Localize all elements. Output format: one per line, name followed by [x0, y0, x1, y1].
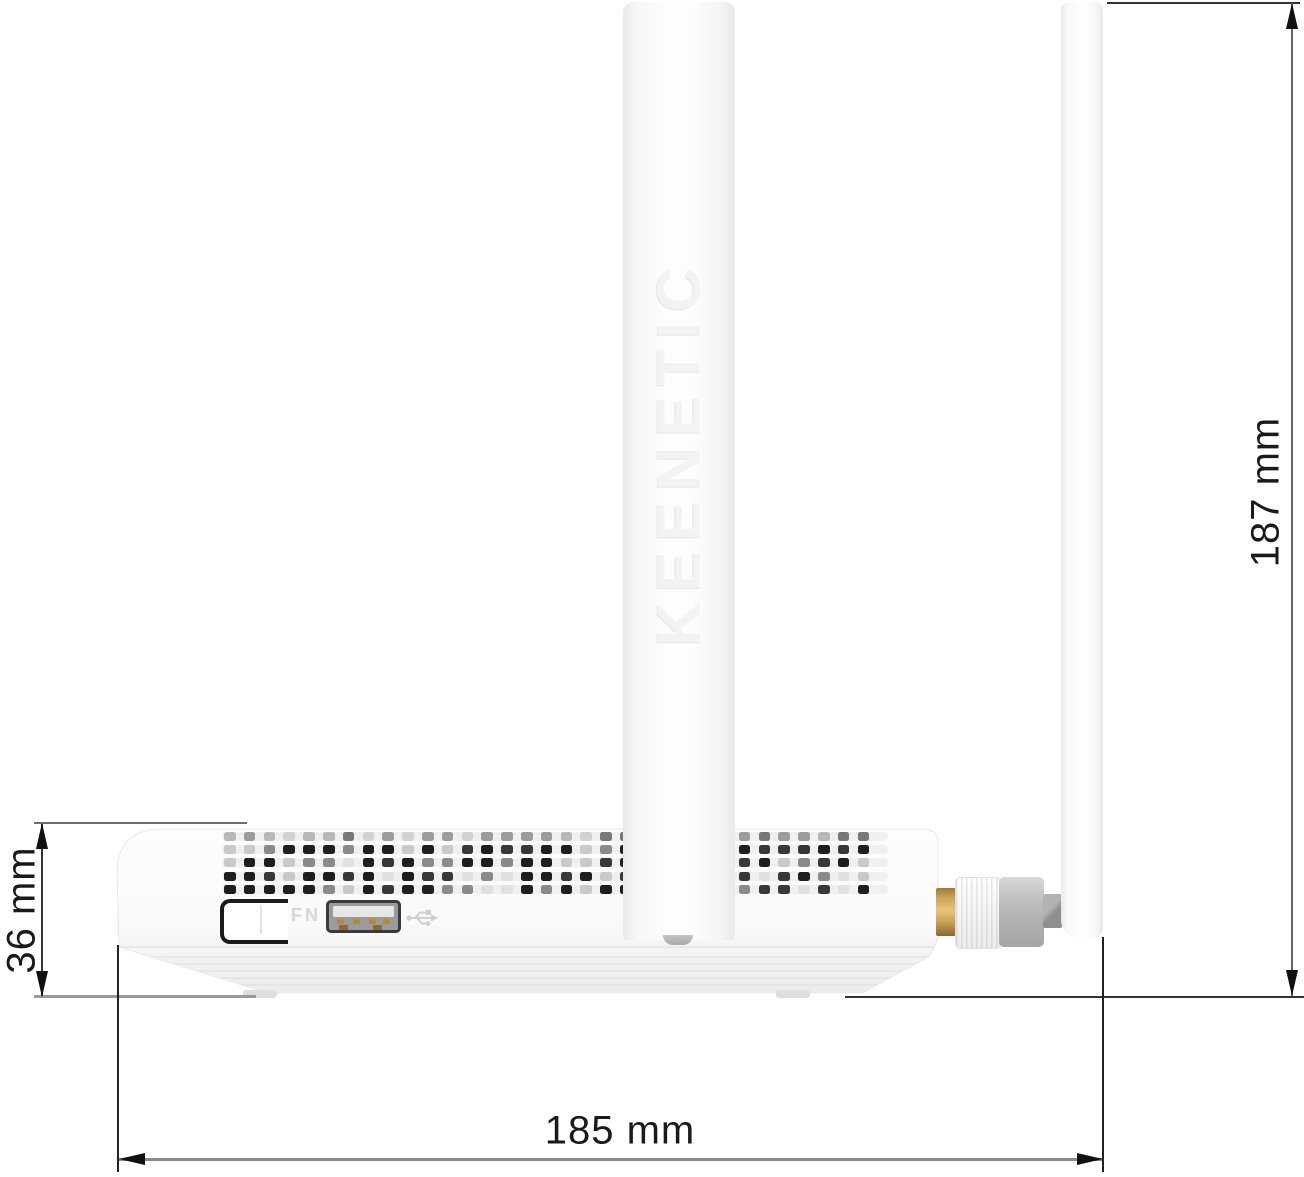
vent-hole [303, 872, 315, 881]
vent-hole [521, 845, 533, 854]
brand-embossed-text: KEENETIC [644, 258, 714, 646]
vent-hole [224, 845, 236, 854]
vent-hole [224, 858, 236, 867]
usb-port [326, 900, 401, 933]
vent-hole [402, 832, 414, 841]
antenna-joint-cylinder [999, 877, 1044, 947]
vent-hole [422, 832, 434, 841]
dimensional-drawing: FN KEENETIC 36 mm [0, 0, 1304, 1177]
usb-anchor-hole [339, 925, 348, 930]
vent-hole [600, 872, 612, 881]
vent-hole [481, 845, 493, 854]
vent-hole [402, 858, 414, 867]
vent-hole [264, 832, 276, 841]
usb-tongue [333, 906, 394, 917]
vent-hole [778, 858, 790, 867]
vent-hole [283, 832, 295, 841]
vent-hole [818, 832, 830, 841]
vent-hole [501, 845, 513, 854]
vent-hole [303, 885, 315, 894]
vent-hole [858, 858, 870, 867]
vent-hole [600, 832, 612, 841]
vent-hole [442, 858, 454, 867]
usb-anchor-hole [373, 925, 382, 930]
arrowhead-up-187mm [1286, 3, 1298, 29]
vent-hole [521, 872, 533, 881]
baseline-right [845, 996, 1304, 998]
vent-hole [580, 872, 592, 881]
vent-hole [343, 832, 355, 841]
vent-hole [580, 885, 592, 894]
vent-hole [244, 858, 256, 867]
usb-contact [383, 919, 390, 924]
vent-hole [580, 845, 592, 854]
vent-hole [422, 872, 434, 881]
vent-hole [422, 858, 434, 867]
vent-hole [580, 832, 592, 841]
vent-hole [561, 845, 573, 854]
vent-hole [363, 872, 375, 881]
vent-hole [818, 845, 830, 854]
vent-hole [442, 832, 454, 841]
vent-hole [283, 845, 295, 854]
vent-hole [778, 885, 790, 894]
extension-line-top-left [34, 822, 247, 824]
dimension-line-185mm [119, 1158, 1102, 1161]
vent-hole [739, 858, 751, 867]
vent-hole [323, 885, 335, 894]
right-antenna [1061, 2, 1103, 938]
vent-hole [481, 858, 493, 867]
fn-button [220, 899, 288, 944]
vent-hole [442, 845, 454, 854]
vent-hole [303, 845, 315, 854]
arrowhead-right-185mm [1077, 1153, 1103, 1165]
vent-hole [838, 858, 850, 867]
vent-hole [541, 885, 553, 894]
vent-hole [283, 858, 295, 867]
arrowhead-up-36mm [36, 823, 48, 849]
vent-hole [264, 845, 276, 854]
vent-hole [541, 845, 553, 854]
vent-hole [561, 858, 573, 867]
vent-hole [600, 885, 612, 894]
vent-hole [798, 845, 810, 854]
vent-hole [343, 885, 355, 894]
vent-hole [323, 872, 335, 881]
extension-line-bottom-left [117, 945, 119, 1172]
vent-hole [244, 832, 256, 841]
vent-hole [323, 858, 335, 867]
vent-hole [382, 832, 394, 841]
vent-hole [283, 885, 295, 894]
vent-hole [382, 872, 394, 881]
vent-hole [798, 872, 810, 881]
vent-hole [402, 845, 414, 854]
vent-hole [363, 858, 375, 867]
vent-hole [224, 832, 236, 841]
vent-hole [739, 832, 751, 841]
vent-hole [363, 845, 375, 854]
vent-hole [462, 832, 474, 841]
vent-hole [521, 858, 533, 867]
vent-hole [759, 845, 771, 854]
fn-button-seam [260, 905, 262, 934]
vent-hole [759, 832, 771, 841]
vent-hole [442, 872, 454, 881]
vent-hole [580, 858, 592, 867]
dimension-label-185mm: 185 mm [545, 1109, 696, 1154]
vent-hole [838, 832, 850, 841]
vent-hole [858, 845, 870, 854]
fn-button-label: FN [291, 905, 331, 931]
usb-contact [337, 919, 344, 924]
vent-hole [561, 885, 573, 894]
vent-hole [501, 885, 513, 894]
vent-hole [363, 885, 375, 894]
vent-hole [561, 832, 573, 841]
extension-line-bottom-right [1102, 937, 1104, 1172]
ventilation-grille [222, 832, 890, 894]
vent-hole [382, 858, 394, 867]
vent-hole [402, 885, 414, 894]
vent-hole [224, 872, 236, 881]
vent-hole [462, 872, 474, 881]
vent-hole [798, 885, 810, 894]
vent-hole [818, 872, 830, 881]
antenna-hinge-arm [1043, 894, 1062, 928]
vent-hole [264, 872, 276, 881]
vent-hole [264, 858, 276, 867]
vent-hole [422, 885, 434, 894]
vent-hole [739, 872, 751, 881]
vent-hole [838, 845, 850, 854]
vent-hole [244, 845, 256, 854]
vent-hole [858, 885, 870, 894]
vent-hole [501, 832, 513, 841]
baseline-left [34, 995, 256, 998]
vent-hole [343, 845, 355, 854]
usb-contact [353, 919, 360, 924]
vent-hole [600, 845, 612, 854]
vent-hole [798, 858, 810, 867]
vent-hole [382, 845, 394, 854]
vent-hole [759, 872, 771, 881]
vent-hole [600, 858, 612, 867]
vent-hole [323, 832, 335, 841]
vent-hole [778, 872, 790, 881]
vent-hole [481, 885, 493, 894]
vent-hole [462, 858, 474, 867]
vent-hole [739, 885, 751, 894]
vent-hole [759, 885, 771, 894]
arrowhead-down-36mm [36, 971, 48, 997]
extension-line-top-right [1107, 2, 1300, 4]
vent-hole [739, 845, 751, 854]
vent-hole [818, 885, 830, 894]
antenna-knurled-nut [955, 877, 1001, 949]
vent-hole [462, 885, 474, 894]
vent-hole [858, 872, 870, 881]
vent-hole [224, 885, 236, 894]
vent-hole [521, 885, 533, 894]
vent-hole [442, 885, 454, 894]
vent-hole [402, 872, 414, 881]
vent-hole [422, 845, 434, 854]
center-antenna: KEENETIC [623, 2, 735, 940]
vent-hole [303, 858, 315, 867]
vent-hole [818, 858, 830, 867]
dimension-label-187mm: 187 mm [1244, 417, 1289, 568]
vent-hole [303, 832, 315, 841]
vent-hole [838, 872, 850, 881]
vent-hole [244, 885, 256, 894]
vent-hole [541, 872, 553, 881]
vent-hole [541, 858, 553, 867]
vent-hole [759, 858, 771, 867]
vent-hole [343, 858, 355, 867]
usb-contact [369, 919, 376, 924]
arrowhead-down-187mm [1286, 970, 1298, 996]
vent-hole [778, 832, 790, 841]
vent-hole [561, 872, 573, 881]
vent-hole [501, 872, 513, 881]
dimension-label-36mm: 36 mm [0, 846, 45, 973]
vent-hole [501, 858, 513, 867]
usb-icon [405, 907, 439, 929]
right-foot [776, 990, 810, 998]
vent-hole [264, 885, 276, 894]
vent-hole [541, 832, 553, 841]
vent-hole [323, 845, 335, 854]
vent-hole [244, 872, 256, 881]
vent-hole [798, 832, 810, 841]
vent-hole [481, 832, 493, 841]
vent-hole [382, 885, 394, 894]
vent-hole [838, 885, 850, 894]
sma-gold-connector [936, 888, 956, 936]
vent-hole [462, 845, 474, 854]
vent-hole [283, 872, 295, 881]
vent-hole [481, 872, 493, 881]
vent-hole [858, 832, 870, 841]
vent-hole [363, 832, 375, 841]
vent-hole [343, 872, 355, 881]
vent-hole [778, 845, 790, 854]
vent-hole [521, 832, 533, 841]
arrowhead-left-185mm [119, 1153, 145, 1165]
dimension-line-187mm [1291, 3, 1293, 996]
